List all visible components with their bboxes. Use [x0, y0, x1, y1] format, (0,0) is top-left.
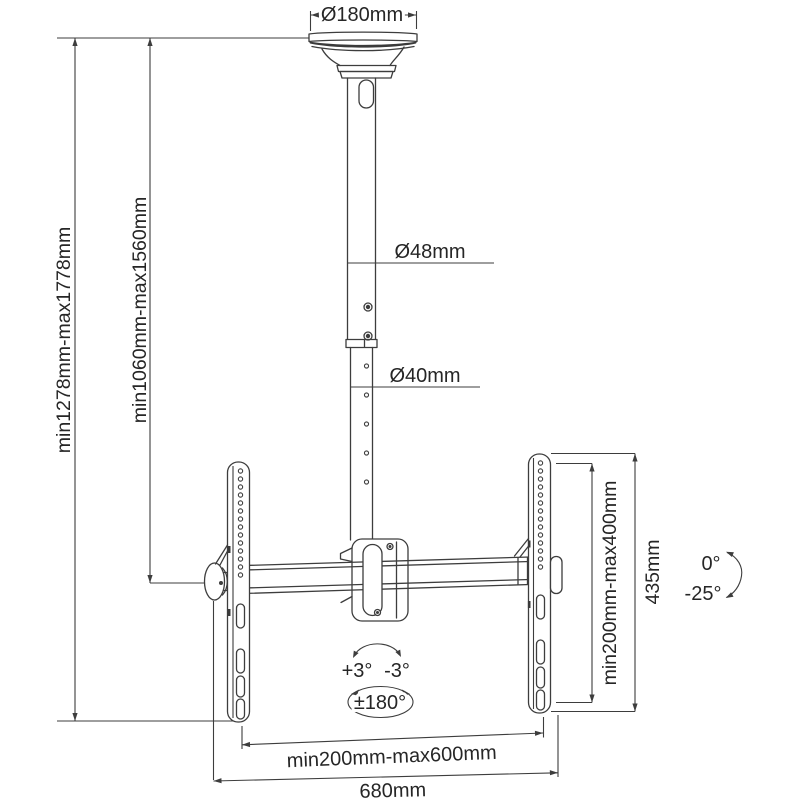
hub-left-bracket	[341, 548, 353, 603]
collar-lower	[340, 72, 393, 79]
rotation-label: ±180°	[354, 692, 406, 714]
arrow-down-icon	[589, 695, 594, 703]
tilt-indicator: 0° -25°	[685, 552, 742, 605]
arrow-down-icon	[632, 704, 637, 712]
lower-pole-body	[351, 348, 373, 541]
upper-pole-diameter-label: Ø48mm	[394, 241, 465, 263]
arrow-left-icon	[242, 742, 250, 747]
upper-pole-body	[348, 78, 376, 340]
plate-rim-shading	[309, 42, 417, 48]
funnel-left-edge	[322, 49, 340, 66]
arrow-up-icon	[632, 454, 637, 462]
lower-pole-diameter-label: Ø40mm	[389, 365, 460, 387]
right-vesa-rail	[515, 454, 563, 713]
rotation-indicator: ±180°	[348, 687, 413, 718]
screw-center	[376, 611, 379, 614]
arrow-right-icon	[535, 731, 543, 736]
telescopic-pole-upper: Ø48mm	[346, 78, 494, 348]
pole-height-label: min1060mm-max1560mm	[129, 197, 151, 424]
vesa-width-label: min200mm-max600mm	[286, 742, 497, 772]
arrow-left-icon	[311, 12, 319, 17]
plate-diameter-label: Ø180mm	[321, 4, 403, 26]
rail-catch	[228, 609, 231, 616]
locking-knob	[205, 563, 229, 600]
pole-slot	[359, 80, 374, 108]
bracket-dimensions: min200mm-max400mm 435mm	[551, 454, 664, 712]
diagram-canvas: min1278mm-max1778mm min1060mm-max1560mm …	[0, 0, 800, 800]
arrow-down-icon	[147, 575, 152, 583]
tilt-up-label: 0°	[701, 553, 720, 575]
arrow-right-icon	[408, 12, 416, 17]
plate-disc	[309, 32, 417, 41]
rail-body	[228, 462, 250, 722]
tilt-arc	[727, 553, 742, 598]
arrow-right-icon	[550, 770, 558, 775]
tilt-mechanism-lobe	[551, 557, 563, 594]
rail-hook	[216, 545, 228, 565]
overall-height-label: min1278mm-max1778mm	[53, 227, 75, 454]
overall-width-label: 680mm	[359, 779, 426, 800]
screw-center	[389, 545, 392, 548]
arrow-icon	[353, 651, 359, 658]
knob-screw	[219, 581, 223, 585]
pole-junction-collar	[346, 340, 377, 348]
arrow-down-icon	[72, 713, 77, 721]
telescopic-pole-lower: Ø40mm	[351, 348, 481, 541]
tilt-down-label: -25°	[685, 583, 722, 605]
vesa-height-label: min200mm-max400mm	[599, 481, 621, 686]
ceiling-tv-mount-diagram: min1278mm-max1778mm min1060mm-max1560mm …	[0, 0, 800, 800]
bracket-height-label: 435mm	[642, 539, 664, 604]
collar-upper	[337, 66, 396, 72]
arrow-up-icon	[72, 38, 77, 46]
rail-catch	[528, 601, 531, 608]
level-indicator: +3° -3°	[342, 644, 410, 682]
hub-clamp-capsule	[363, 545, 382, 616]
bracket-height-dim	[551, 454, 635, 712]
arrow-left-icon	[214, 778, 222, 783]
level-minus-label: -3°	[384, 660, 410, 682]
vesa-width-dim-line	[242, 733, 543, 745]
arrow-up-icon	[147, 38, 152, 46]
level-plus-label: +3°	[342, 660, 373, 682]
rail-hook	[515, 539, 530, 558]
ceiling-plate: Ø180mm	[309, 4, 417, 78]
rail-catch	[228, 546, 231, 553]
arrow-up-icon	[589, 464, 594, 472]
rail-catch	[528, 541, 531, 548]
height-dimensions: min1278mm-max1778mm min1060mm-max1560mm	[53, 38, 309, 721]
screw-center	[366, 305, 370, 309]
level-arc	[354, 644, 400, 656]
screw-center	[366, 334, 370, 338]
